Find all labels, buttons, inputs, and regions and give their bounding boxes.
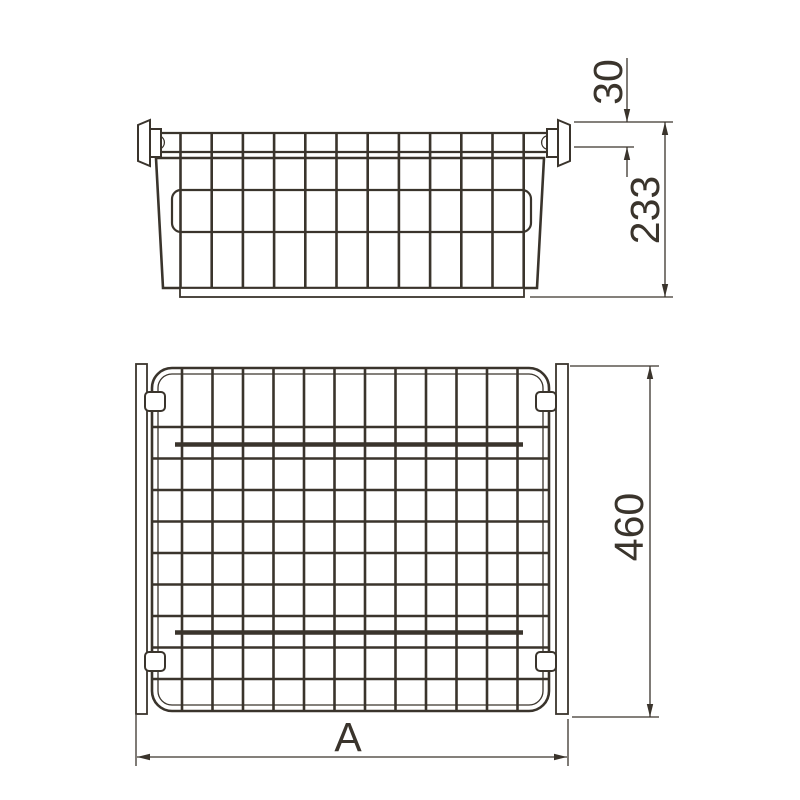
arrowhead-left	[137, 754, 150, 760]
dimension-rail-offset: 30	[574, 58, 673, 177]
arrowhead-up	[662, 122, 668, 135]
right-end-cap	[547, 120, 570, 166]
dimension-label-30: 30	[585, 59, 631, 105]
arrowhead-down	[624, 109, 630, 122]
hanging-rail	[158, 133, 548, 152]
clip-right-bottom	[536, 652, 556, 671]
plan-grid	[153, 369, 548, 710]
basket-front-outline	[156, 158, 544, 288]
arrowhead-down	[647, 704, 653, 717]
basket-base	[180, 288, 524, 297]
basket-rim-inner	[158, 374, 543, 705]
arrowhead-up	[624, 147, 630, 160]
drawing-svg: 30 233	[0, 0, 800, 800]
right-slide-rail	[556, 364, 568, 714]
basket-handle	[172, 190, 531, 232]
arrowhead-right	[554, 754, 567, 760]
arrowhead-down	[662, 284, 668, 297]
plan-view: 460 A	[136, 364, 659, 766]
front-wires	[181, 133, 524, 288]
dimension-depth: 460	[570, 366, 659, 717]
dimension-label-233: 233	[622, 176, 668, 244]
clip-right-top	[536, 392, 556, 411]
dimension-label-460: 460	[606, 493, 652, 561]
dimension-width: A	[136, 714, 568, 766]
arrowhead-up	[647, 366, 653, 379]
clip-left-bottom	[145, 652, 165, 671]
front-view: 30 233	[138, 58, 673, 297]
clip-left-top	[145, 392, 165, 411]
rail-rod-end-right	[542, 136, 546, 149]
dimension-label-A: A	[334, 714, 362, 760]
technical-drawing: 30 233	[0, 0, 800, 800]
